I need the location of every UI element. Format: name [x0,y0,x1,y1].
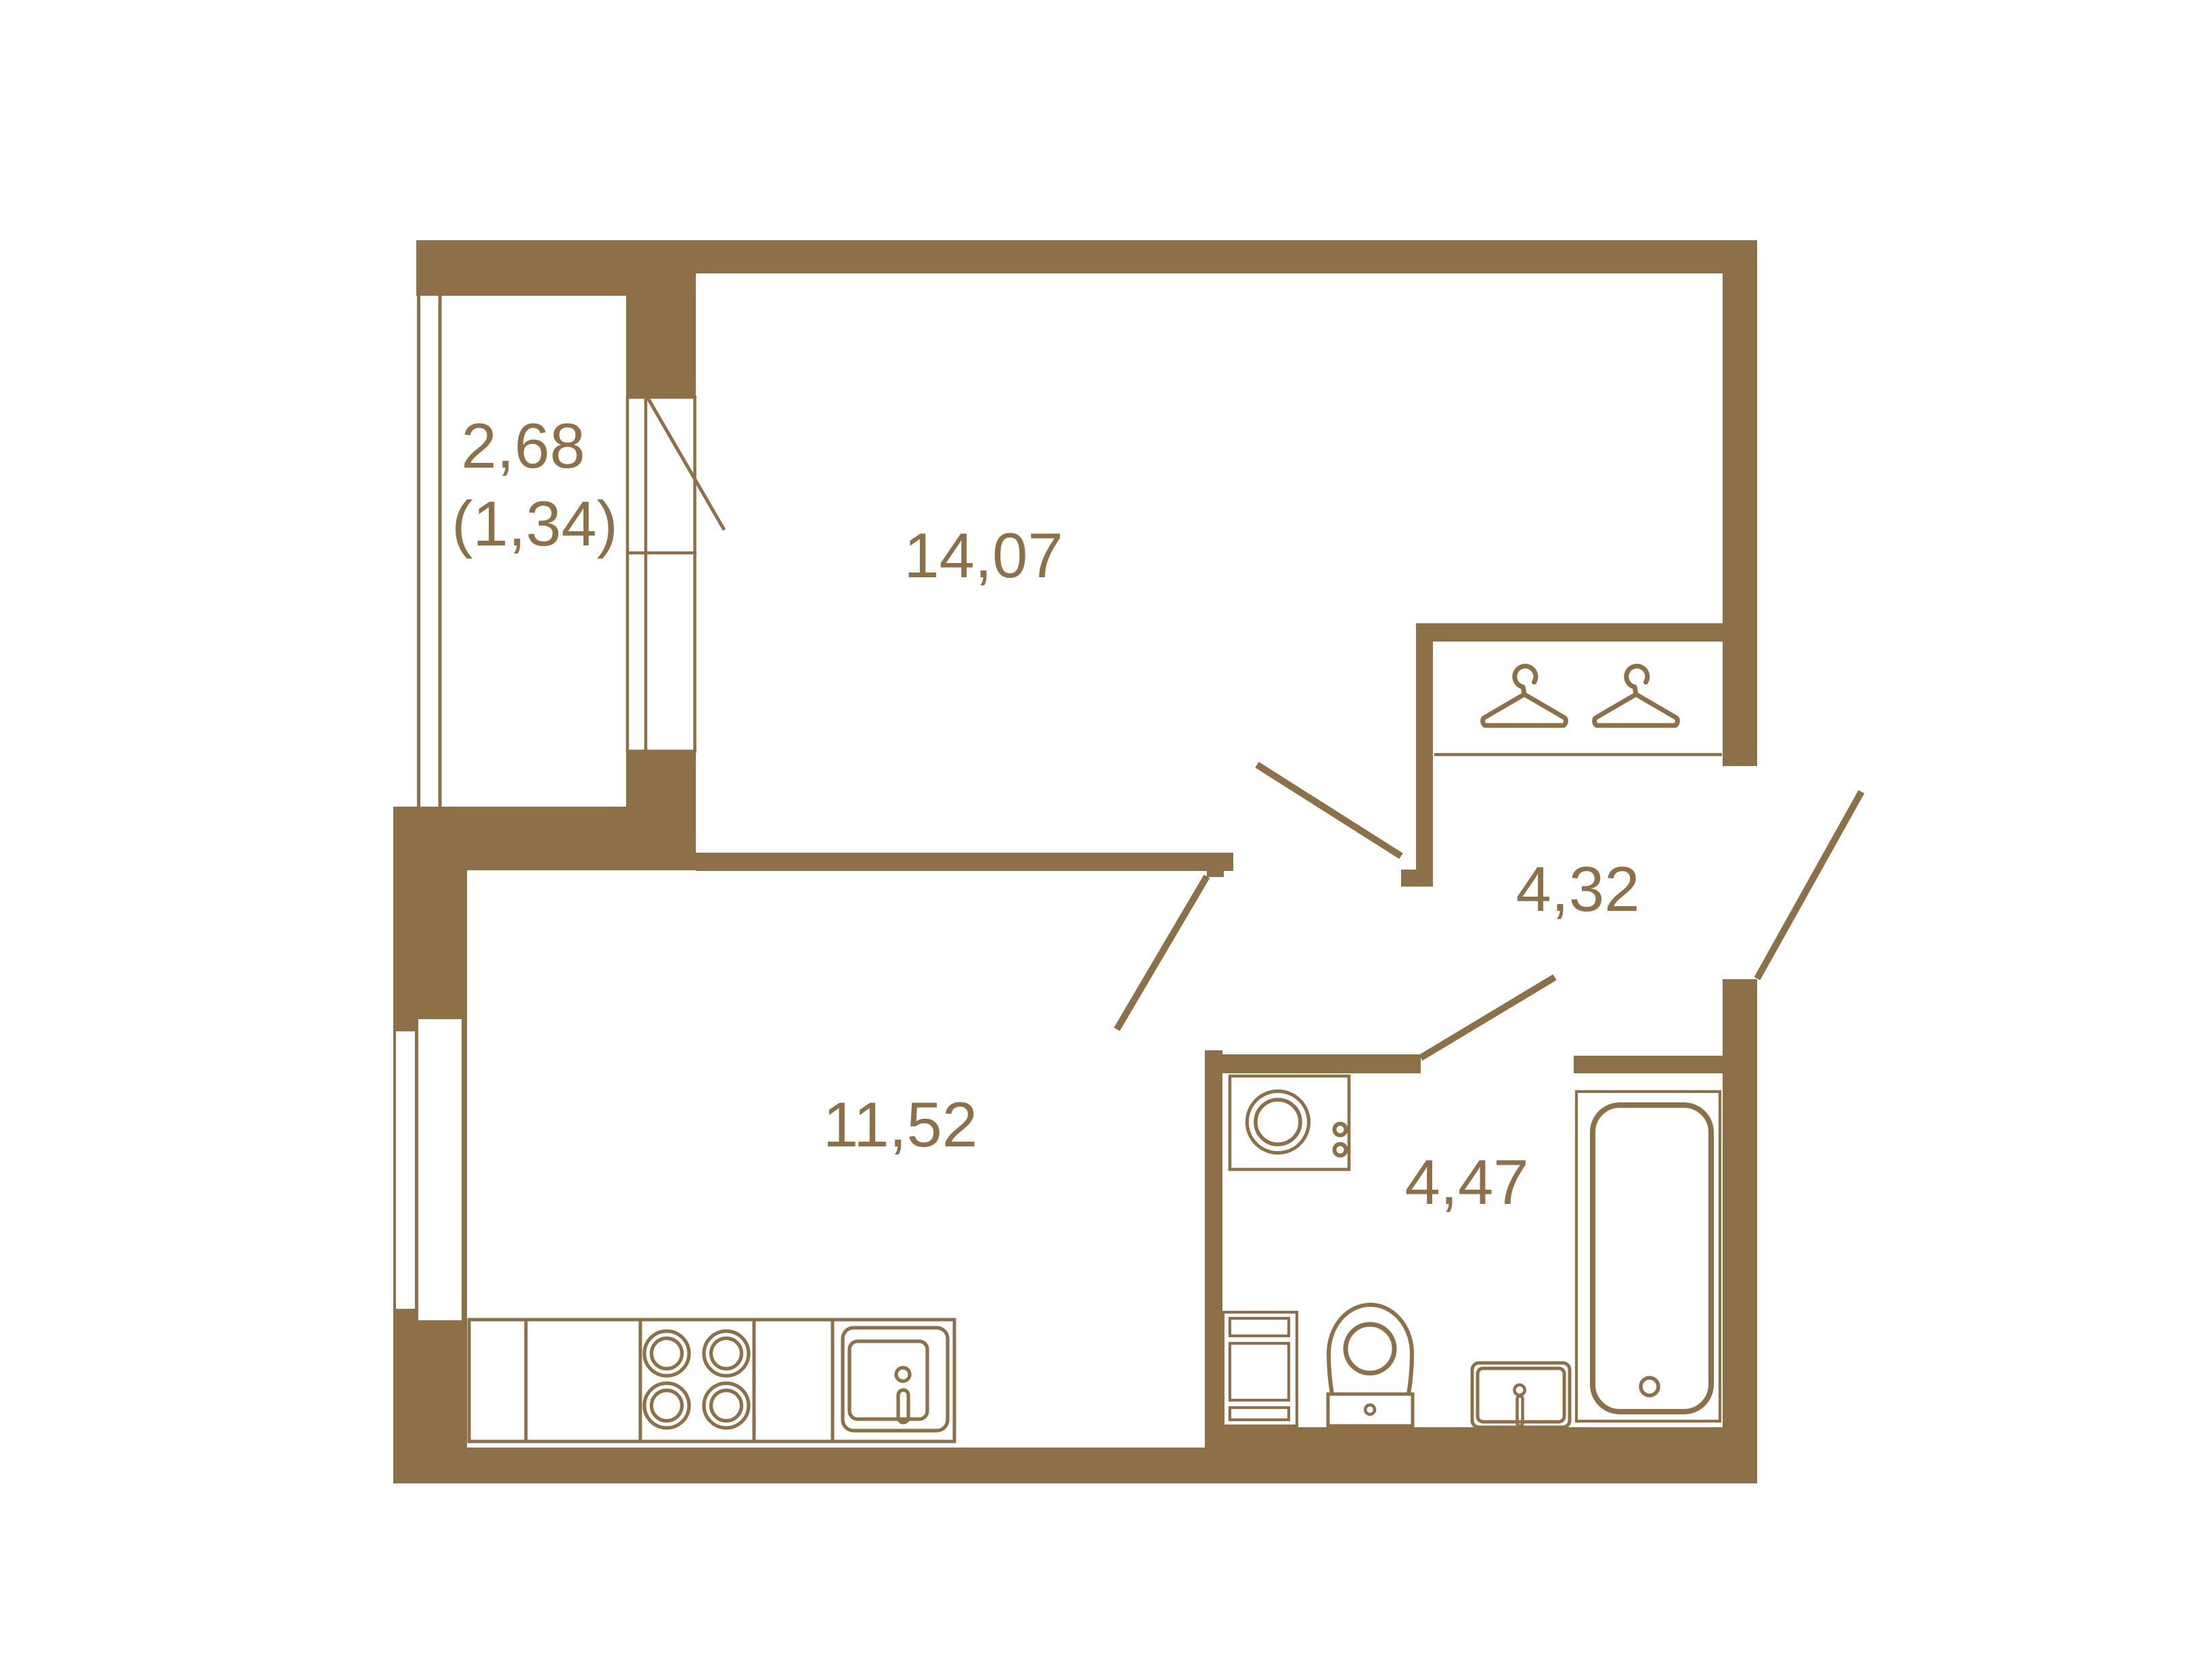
svg-text:14,07: 14,07 [904,520,1063,591]
svg-text:(1,34): (1,34) [451,488,618,559]
svg-text:4,47: 4,47 [1405,1146,1529,1217]
svg-text:4,32: 4,32 [1516,853,1640,924]
svg-text:2,68: 2,68 [462,410,585,481]
svg-text:11,52: 11,52 [823,1089,977,1160]
